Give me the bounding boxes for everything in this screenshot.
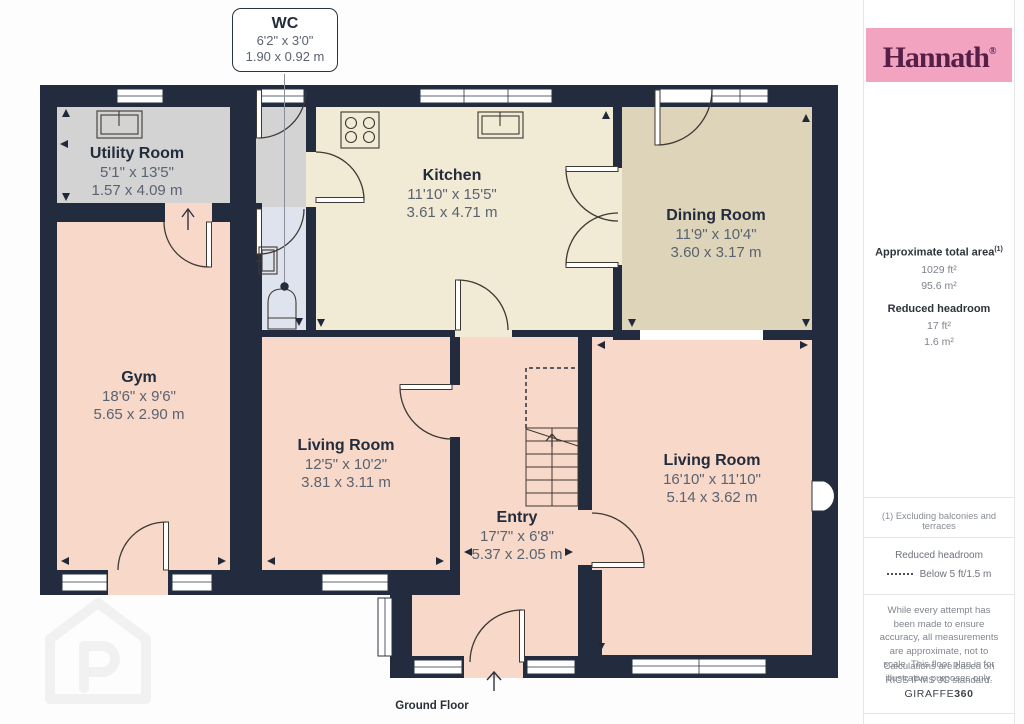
wc-callout-metric: 1.90 x 0.92 m [233, 49, 337, 65]
registered-mark: ® [989, 46, 995, 57]
legend-title: Reduced headroom [864, 550, 1014, 561]
stove [341, 112, 379, 148]
porch-floor [412, 595, 580, 662]
dotted-line-sample [887, 573, 913, 575]
divider [864, 594, 1014, 595]
wc-callout-imperial: 6'2" x 3'0" [233, 33, 337, 49]
bay-niche [812, 481, 834, 511]
legend-value: Below 5 ft/1.5 m [920, 569, 992, 580]
wc-floor [256, 207, 306, 330]
floor-plan-svg [0, 0, 862, 724]
watermark-house-logo [50, 603, 146, 699]
corridor-floor [256, 90, 306, 207]
divider [864, 497, 1014, 498]
wc-callout: WC 6'2" x 3'0" 1.90 x 0.92 m [232, 8, 338, 72]
brand-name: Hannath® [883, 37, 996, 73]
brand-logo: Hannath® [866, 28, 1012, 82]
footnote: (1) Excluding balconies and terraces [864, 511, 1014, 531]
area-ft: 1029 ft² [864, 264, 1014, 276]
wc-callout-title: WC [233, 14, 337, 33]
room-label-entry: Entry 17'7" x 6'8" 5.37 x 2.05 m [472, 508, 563, 564]
headroom-title: Reduced headroom [864, 303, 1014, 315]
sidebar: Hannath® Approximate total area(1) 1029 … [863, 0, 1015, 724]
room-label-living-right: Living Room 16'10" x 11'10" 5.14 x 3.62 … [663, 451, 761, 507]
room-label-utility: Utility Room 5'1" x 13'5" 1.57 x 4.09 m [90, 144, 184, 200]
standards-text: Calculations are based on RICS IPMS 3C s… [864, 660, 1014, 687]
giraffe360-logo: GIRAFFE360 [864, 688, 1014, 700]
headroom-m: 1.6 m² [864, 336, 1014, 348]
headroom-ft: 17 ft² [864, 320, 1014, 332]
floor-label: Ground Floor [332, 700, 532, 712]
area-title: Approximate total area(1) [864, 246, 1014, 259]
room-label-kitchen: Kitchen 11'10" x 15'5" 3.61 x 4.71 m [407, 166, 498, 222]
divider [864, 713, 1014, 714]
floorplan-page: WC 6'2" x 3'0" 1.90 x 0.92 m Utility Roo… [0, 0, 1024, 724]
divider [864, 537, 1014, 538]
room-label-dining: Dining Room 11'9" x 10'4" 3.60 x 3.17 m [666, 206, 766, 262]
legend-row: Below 5 ft/1.5 m [864, 569, 1014, 580]
room-label-living-left: Living Room 12'5" x 10'2" 3.81 x 3.11 m [298, 436, 395, 492]
room-label-gym: Gym 18'6" x 9'6" 5.65 x 2.90 m [94, 368, 185, 424]
area-m: 95.6 m² [864, 280, 1014, 292]
